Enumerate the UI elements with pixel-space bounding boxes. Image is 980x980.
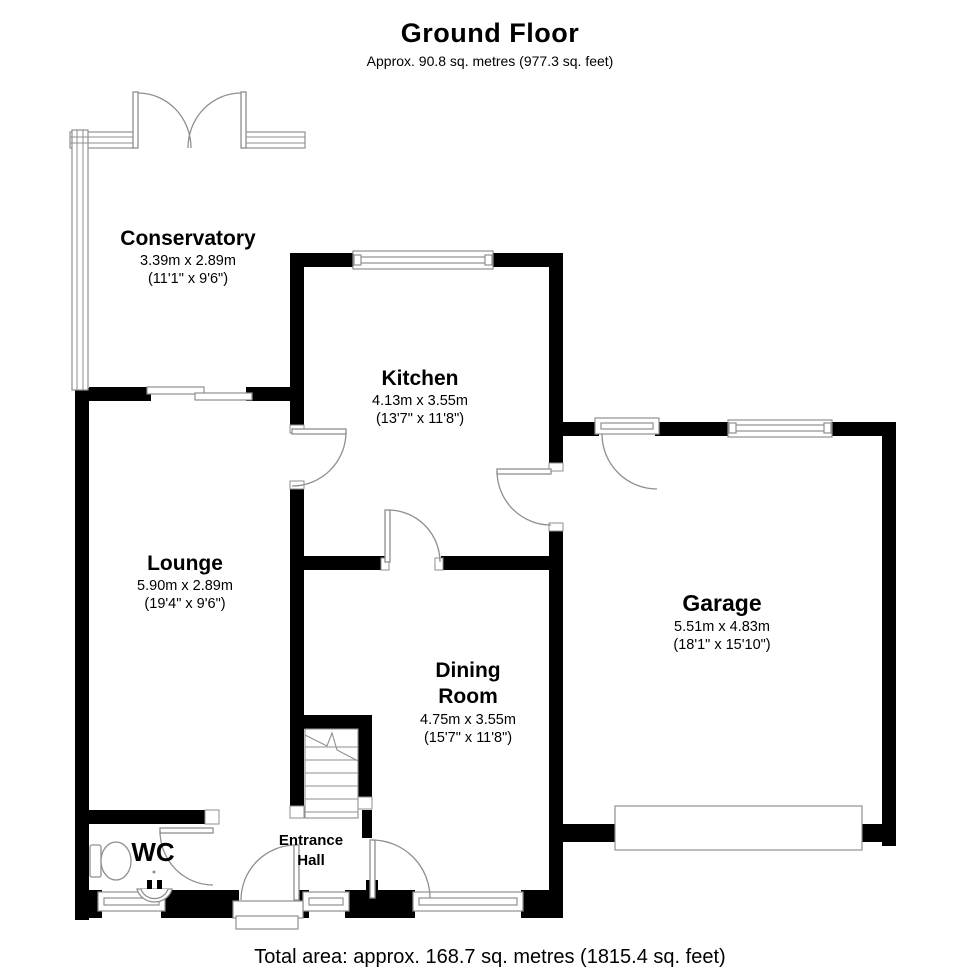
wall <box>89 810 219 824</box>
room-label-garage: Garage 5.51m x 4.83m (18'1" x 15'10") <box>673 589 770 654</box>
floorplan: Ground Floor Approx. 90.8 sq. metres (97… <box>0 0 980 980</box>
french-door-leaf <box>133 92 138 148</box>
room-dims-metric: 3.39m x 2.89m <box>120 252 255 270</box>
door-arc <box>372 840 430 898</box>
page-subtitle: Approx. 90.8 sq. metres (977.3 sq. feet) <box>0 53 980 69</box>
window-cap <box>485 255 492 265</box>
wall <box>75 388 89 920</box>
front-door-step <box>236 916 298 929</box>
page-title: Ground Floor <box>0 18 980 49</box>
door-leaf <box>385 510 390 562</box>
plan-header: Ground Floor Approx. 90.8 sq. metres (97… <box>0 18 980 69</box>
door-arc <box>138 93 191 148</box>
floorplan-drawing <box>0 0 980 980</box>
sliding-door <box>147 387 252 400</box>
door-arc <box>388 510 440 562</box>
jamb <box>290 806 304 818</box>
wall <box>549 422 599 436</box>
staircase <box>305 729 358 818</box>
total-area-text: Total area: approx. 168.7 sq. metres (18… <box>0 946 980 969</box>
sliding-panel <box>195 393 252 400</box>
door-leaf <box>160 828 213 833</box>
room-name: Kitchen <box>372 366 468 392</box>
doors <box>133 92 657 900</box>
room-dims-imperial: (15'7" x 11'8") <box>420 729 516 747</box>
wall <box>290 253 304 431</box>
wall <box>290 556 387 570</box>
room-name: Conservatory <box>120 226 255 252</box>
window-cap <box>824 423 831 433</box>
room-name: Lounge <box>137 551 233 577</box>
room-name: Dining Room <box>423 658 513 711</box>
wall <box>358 715 372 799</box>
sink-tap <box>147 880 152 889</box>
jamb <box>205 810 219 824</box>
room-label-entrance-hall: Entrance Hall <box>271 831 351 870</box>
garage-door <box>615 806 862 850</box>
window-pane <box>309 898 343 905</box>
room-dims-imperial: (19'4" x 9'6") <box>137 595 233 613</box>
toilet-cistern <box>90 845 101 877</box>
window-cap <box>354 255 361 265</box>
sink-drain <box>153 871 156 874</box>
wall <box>655 422 733 436</box>
window-pane <box>735 425 825 431</box>
wall <box>161 890 239 918</box>
wall <box>549 253 563 469</box>
room-label-dining-room: Dining Room 4.75m x 3.55m (15'7" x 11'8"… <box>420 658 516 747</box>
wall <box>89 387 151 401</box>
door-arc <box>497 471 551 525</box>
glazed-wall <box>242 132 305 148</box>
wall <box>882 422 896 846</box>
wall <box>246 387 304 401</box>
room-label-kitchen: Kitchen 4.13m x 3.55m (13'7" x 11'8") <box>372 366 468 429</box>
window-pane <box>419 898 517 905</box>
room-name: Entrance Hall <box>271 831 351 870</box>
wall <box>441 556 563 570</box>
door-leaf <box>370 840 375 898</box>
window-pane <box>360 257 486 263</box>
room-dims-imperial: (13'7" x 11'8") <box>372 410 468 428</box>
door-arc <box>602 434 657 489</box>
room-label-lounge: Lounge 5.90m x 2.89m (19'4" x 9'6") <box>137 551 233 614</box>
jamb <box>358 797 372 809</box>
door-leaf <box>292 429 346 434</box>
glazed-wall <box>72 130 88 390</box>
jamb <box>549 523 563 531</box>
garage-side-door-panel <box>601 423 653 429</box>
room-dims-imperial: (18'1" x 15'10") <box>673 636 770 654</box>
room-dims-metric: 4.75m x 3.55m <box>420 711 516 729</box>
room-dims-metric: 5.90m x 2.89m <box>137 577 233 595</box>
french-door-leaf <box>241 92 246 148</box>
room-label-conservatory: Conservatory 3.39m x 2.89m (11'1" x 9'6"… <box>120 226 255 289</box>
room-dims-metric: 4.13m x 3.55m <box>372 392 468 410</box>
wall <box>345 890 415 918</box>
wall <box>549 527 563 918</box>
jamb <box>435 558 443 570</box>
room-dims-metric: 5.51m x 4.83m <box>673 618 770 636</box>
room-name: WC <box>131 836 174 869</box>
window-cap <box>729 423 736 433</box>
door-arc <box>292 432 346 486</box>
jamb-caps <box>205 425 563 824</box>
room-name: Garage <box>673 589 770 618</box>
room-label-wc: WC <box>131 836 174 869</box>
door-arc <box>188 93 241 148</box>
door-leaf <box>497 469 551 474</box>
wall <box>290 487 304 818</box>
wall <box>362 810 372 838</box>
room-dims-imperial: (11'1" x 9'6") <box>120 270 255 288</box>
toilet-bowl <box>101 842 131 880</box>
wall <box>521 890 563 918</box>
sink-tap <box>157 880 162 889</box>
